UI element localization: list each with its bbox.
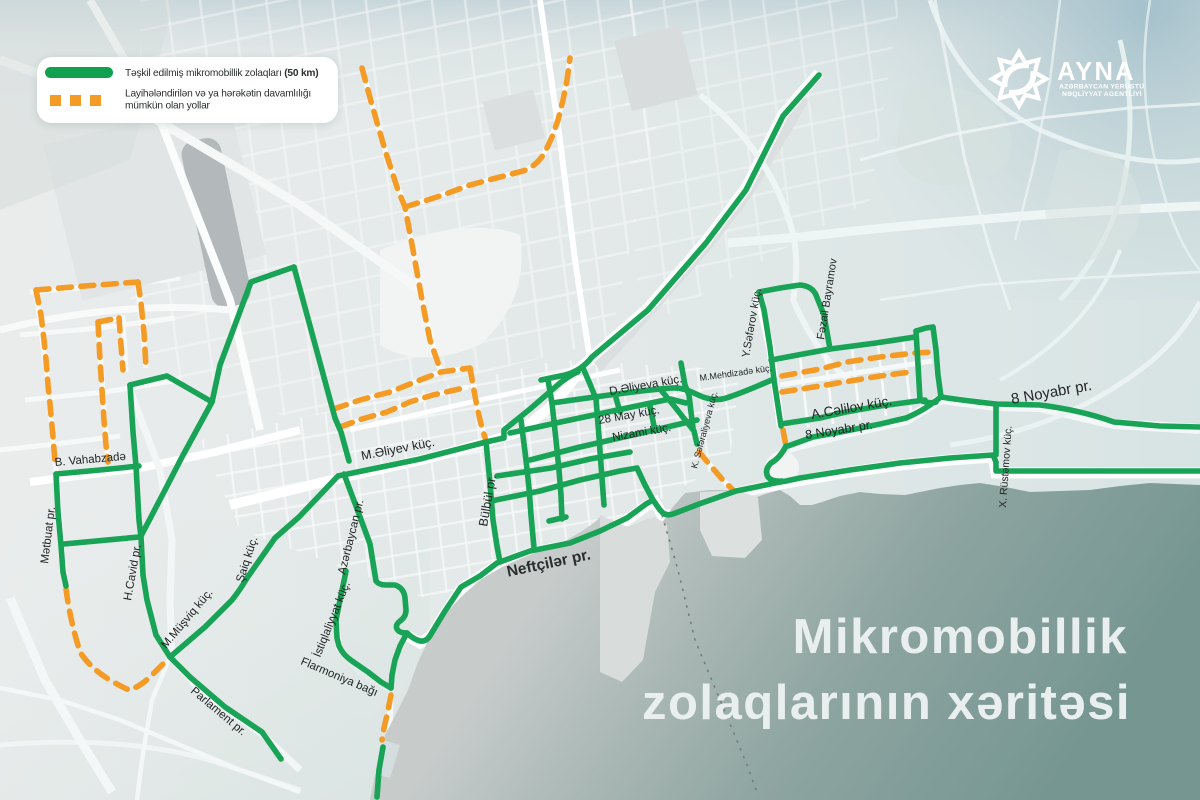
svg-text:NƏQLİYYAT AGENTLİYİ: NƏQLİYYAT AGENTLİYİ [1062, 90, 1142, 98]
svg-text:zolaqlarının xəritəsi: zolaqlarının xəritəsi [642, 676, 1131, 730]
svg-text:AYNA: AYNA [1057, 58, 1136, 86]
svg-text:mümkün olan yollar: mümkün olan yollar [125, 101, 211, 112]
svg-text:Mikromobillik: Mikromobillik [793, 610, 1128, 664]
svg-text:AZƏRBAYCAN YERÜSTÜ: AZƏRBAYCAN YERÜSTÜ [1059, 82, 1144, 91]
svg-text:Layihələndirilən və ya hərəkət: Layihələndirilən və ya hərəkətin davamlı… [125, 89, 311, 100]
svg-text:Təşkil edilmiş mikromobillik z: Təşkil edilmiş mikromobillik zolaqları (… [125, 68, 318, 79]
